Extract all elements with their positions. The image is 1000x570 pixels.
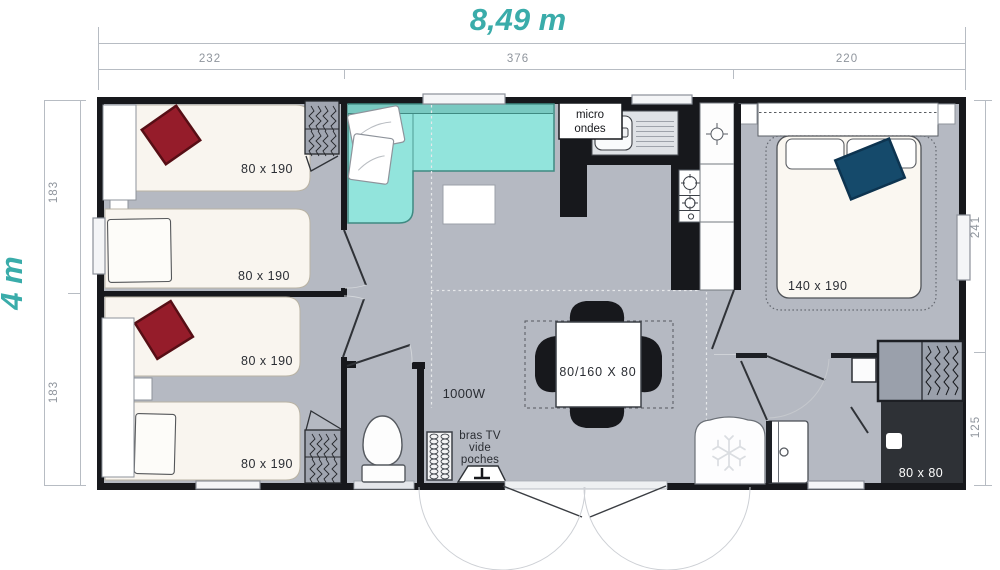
svg-text:bras TV: bras TV [459,430,501,442]
svg-text:1000W: 1000W [443,386,486,401]
svg-text:ondes: ondes [574,123,606,135]
svg-text:183: 183 [48,181,60,203]
svg-text:80 x 80: 80 x 80 [899,466,944,480]
svg-text:241: 241 [970,216,982,238]
svg-text:232: 232 [199,53,221,65]
svg-text:4 m: 4 m [0,256,29,310]
svg-text:220: 220 [836,53,858,65]
svg-text:poches: poches [461,454,499,466]
svg-text:micro: micro [576,109,604,121]
svg-text:80/160 X 80: 80/160 X 80 [559,365,636,379]
svg-text:8,49 m: 8,49 m [470,2,567,37]
svg-text:80 x 190: 80 x 190 [241,354,293,368]
svg-text:376: 376 [507,53,529,65]
svg-text:140 x 190: 140 x 190 [788,279,847,293]
svg-text:183: 183 [48,381,60,403]
svg-text:125: 125 [970,416,982,438]
svg-text:80 x 190: 80 x 190 [241,162,293,176]
svg-text:vide: vide [469,442,491,454]
svg-text:80 x 190: 80 x 190 [241,457,293,471]
svg-text:80 x 190: 80 x 190 [238,269,290,283]
